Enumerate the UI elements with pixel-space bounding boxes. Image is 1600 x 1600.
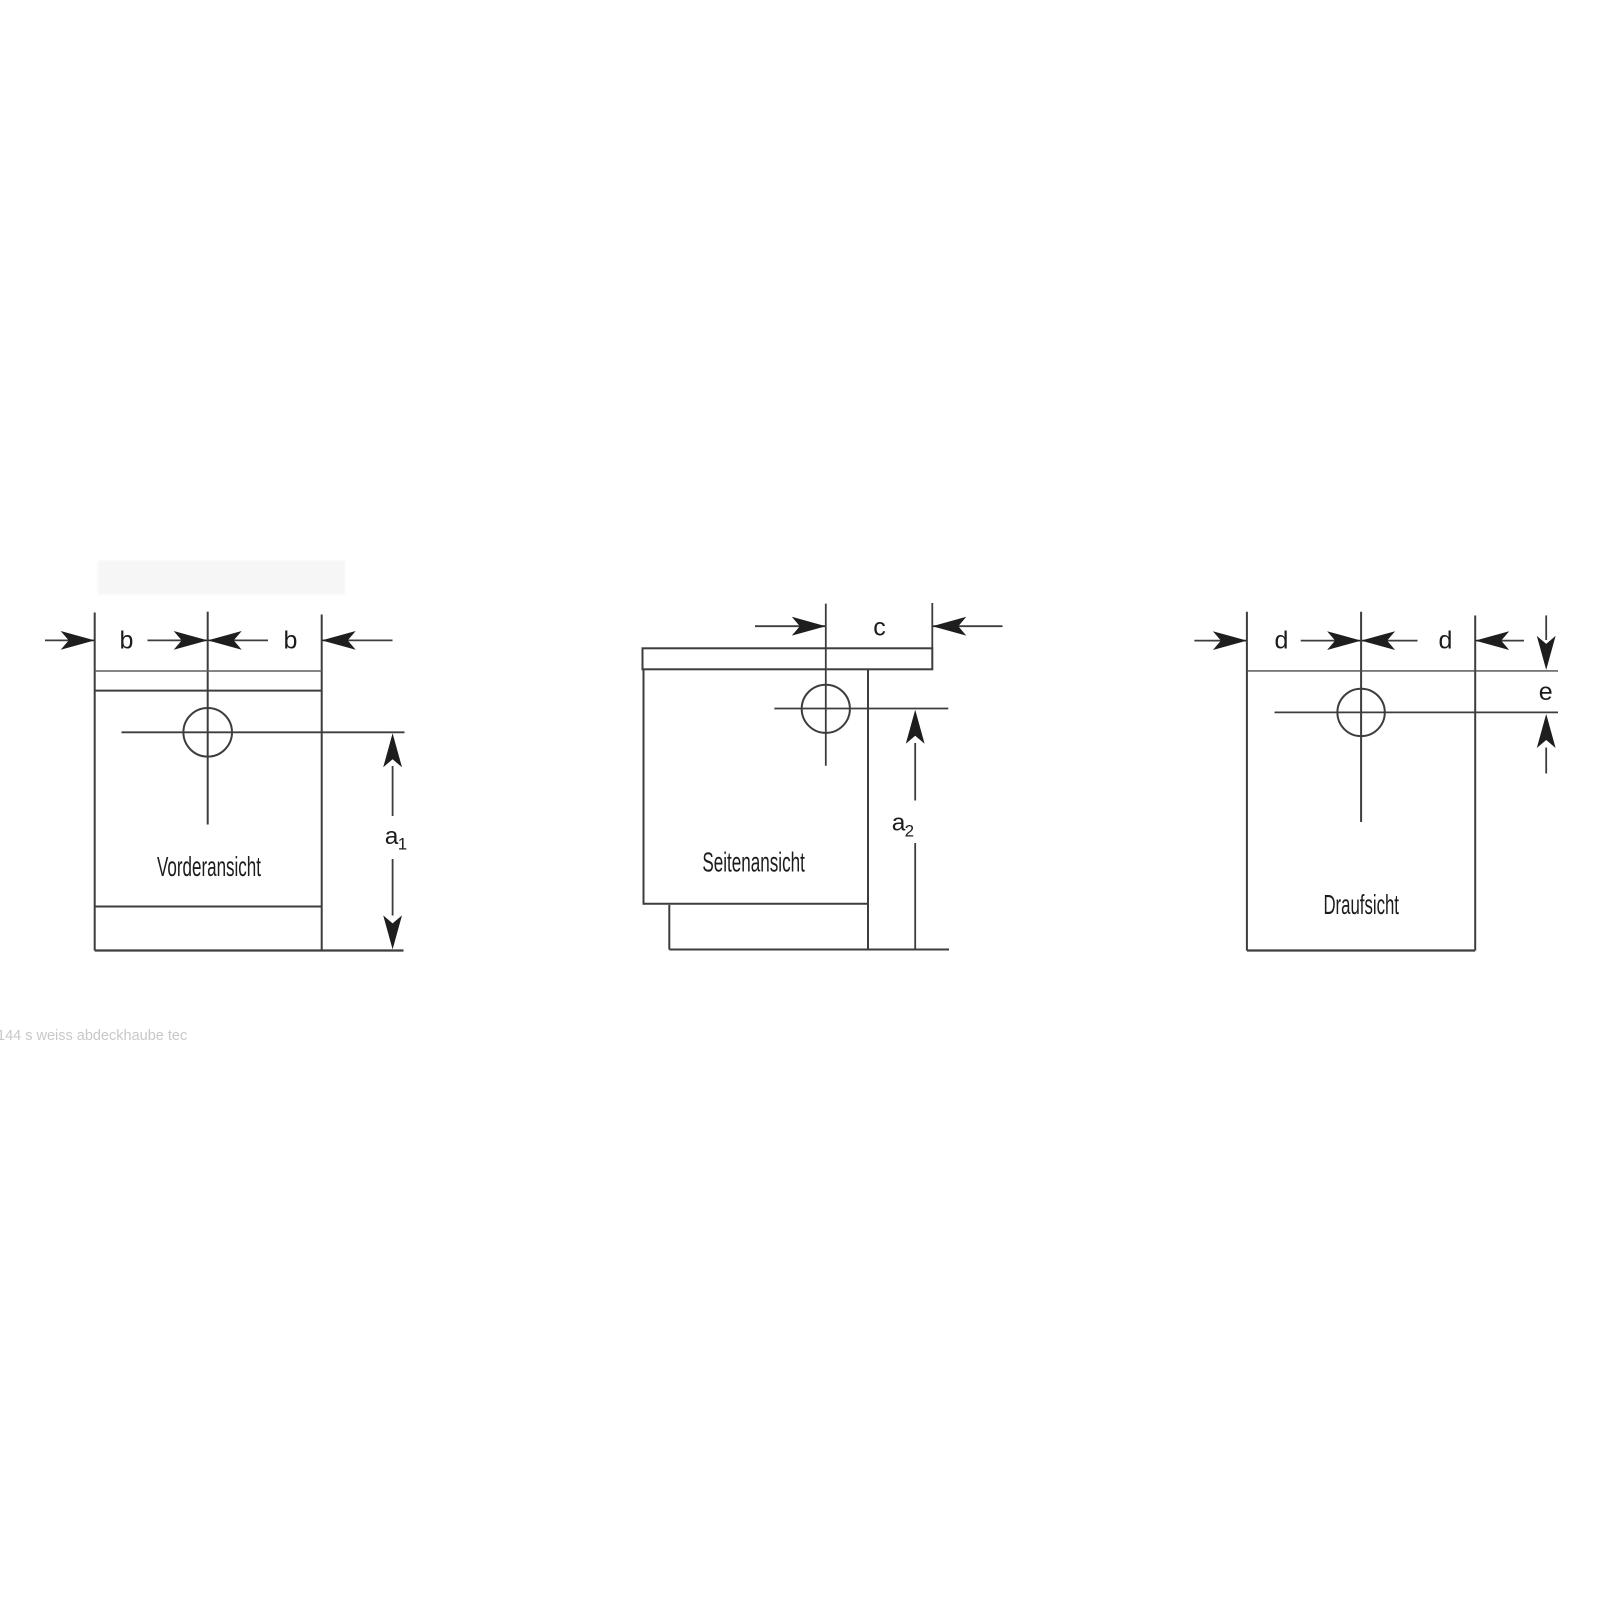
svg-text:1: 1	[398, 834, 407, 853]
svg-text:a: a	[385, 823, 399, 850]
svg-text:2: 2	[905, 822, 914, 841]
svg-text:b: b	[120, 627, 134, 655]
svg-text:b: b	[284, 627, 298, 655]
svg-text:c: c	[873, 614, 886, 642]
svg-text:Seitenansicht: Seitenansicht	[702, 846, 805, 877]
svg-text:Vorderansicht: Vorderansicht	[157, 851, 261, 882]
svg-text:d: d	[1275, 627, 1289, 655]
svg-text:d: d	[1439, 627, 1453, 655]
svg-text:Draufsicht: Draufsicht	[1323, 889, 1399, 920]
svg-text:e: e	[1539, 678, 1553, 706]
svg-text:144 s weiss abdeckhaube tec: 144 s weiss abdeckhaube tec	[0, 1028, 187, 1044]
